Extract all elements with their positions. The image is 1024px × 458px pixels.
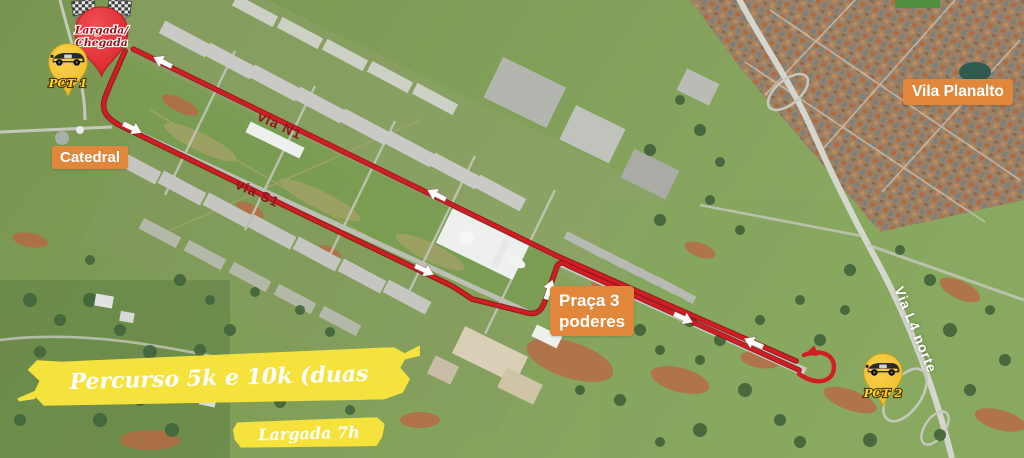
pct2-pin: PCT 2 [856, 348, 910, 410]
pct2-label: PCT 2 [863, 386, 903, 400]
race-course-map: Largada/ Chegada PCT 1 [0, 0, 1024, 458]
praca-label-line2: poderes [559, 311, 625, 332]
praca-3-poderes-label: Praça 3 poderes [550, 286, 634, 336]
pct1-pin: PCT 1 [41, 38, 95, 100]
sports-field [895, 0, 940, 8]
catedral-label: Catedral [52, 146, 128, 169]
start-finish-label-line1: Largada/ [74, 25, 130, 37]
pct1-label: PCT 1 [48, 76, 88, 90]
vila-planalto-label: Vila Planalto [903, 79, 1013, 105]
start-time-banner: Largada 7h [233, 417, 386, 450]
praca-label-line1: Praça 3 [559, 290, 625, 311]
